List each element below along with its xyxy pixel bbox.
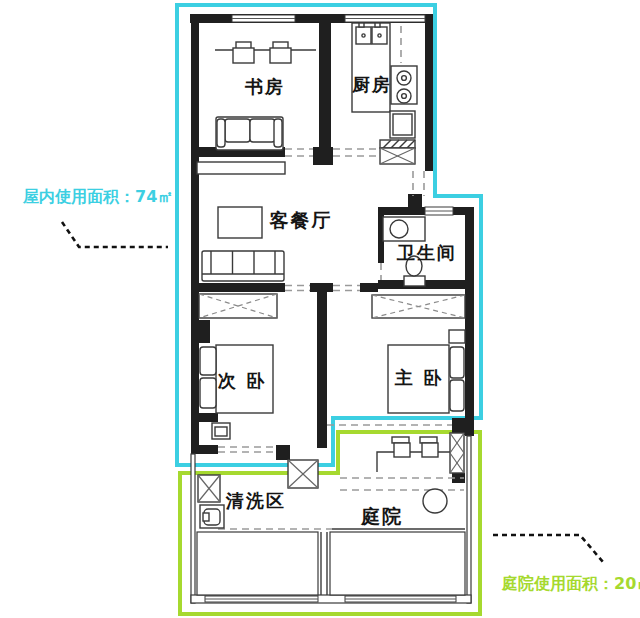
nightstand: [449, 330, 465, 343]
wardrobe: [199, 294, 277, 318]
pillow: [450, 347, 464, 378]
kitchen-hatch-counter: [380, 140, 415, 148]
study-label: 书房: [244, 76, 285, 97]
bathroom-sink: [383, 217, 425, 241]
round-table: [423, 489, 447, 513]
kitchen-window: [345, 15, 425, 22]
cabinet-x: [288, 460, 318, 488]
study-chair: [233, 42, 254, 63]
study-chair: [270, 42, 291, 63]
living-dining-label: 客餐厅: [269, 209, 333, 231]
indoor-area-annotation: 屋内使用面积：74㎡: [22, 187, 173, 206]
living-sofa: [202, 251, 284, 281]
wardrobe: [372, 295, 465, 318]
pillow: [450, 380, 464, 411]
kitchen-label: 厨房: [351, 74, 392, 95]
garden-table: [377, 452, 452, 472]
courtyard-area-annotation: 庭院使用面积：20㎡: [501, 574, 640, 593]
study-sofa: [216, 117, 283, 150]
bathroom-label: 卫生间: [396, 242, 457, 263]
bathroom-window: [425, 207, 453, 215]
pillow: [200, 347, 216, 375]
courtyard-area-leader-line: [493, 535, 603, 562]
garden-stool: [392, 437, 410, 457]
floor-plan: 书房 厨房 客餐厅 卫生间 次 卧 主 卧 清洗区 庭院 屋内使用面积：74㎡ …: [0, 0, 640, 618]
kitchen-stove: [391, 66, 417, 104]
second-bedroom-label: 次 卧: [218, 370, 266, 391]
kitchen-cabinet: [390, 111, 415, 138]
nightstand: [212, 423, 230, 439]
study-window: [232, 15, 295, 22]
living-sideboard: [197, 162, 285, 174]
floor-plan-page: 书房 厨房 客餐厅 卫生间 次 卧 主 卧 清洗区 庭院 屋内使用面积：74㎡ …: [0, 0, 640, 618]
garden-stool: [420, 437, 438, 457]
coffee-table: [218, 207, 262, 238]
pillow: [200, 378, 216, 408]
cabinet-x: [198, 475, 220, 502]
kitchen-fridge: [380, 148, 415, 164]
washing-area-label: 清洗区: [225, 490, 286, 511]
master-bedroom-label: 主 卧: [394, 367, 443, 388]
garden-beds: [197, 532, 465, 595]
courtyard-door-x: [450, 433, 464, 473]
washing-machine: [200, 505, 224, 528]
courtyard-window-right: [345, 596, 456, 602]
master-bedroom-furniture: [372, 295, 465, 413]
courtyard-label: 庭院: [360, 505, 403, 527]
courtyard-window-left: [205, 596, 318, 602]
indoor-area-leader-line: [62, 222, 168, 247]
